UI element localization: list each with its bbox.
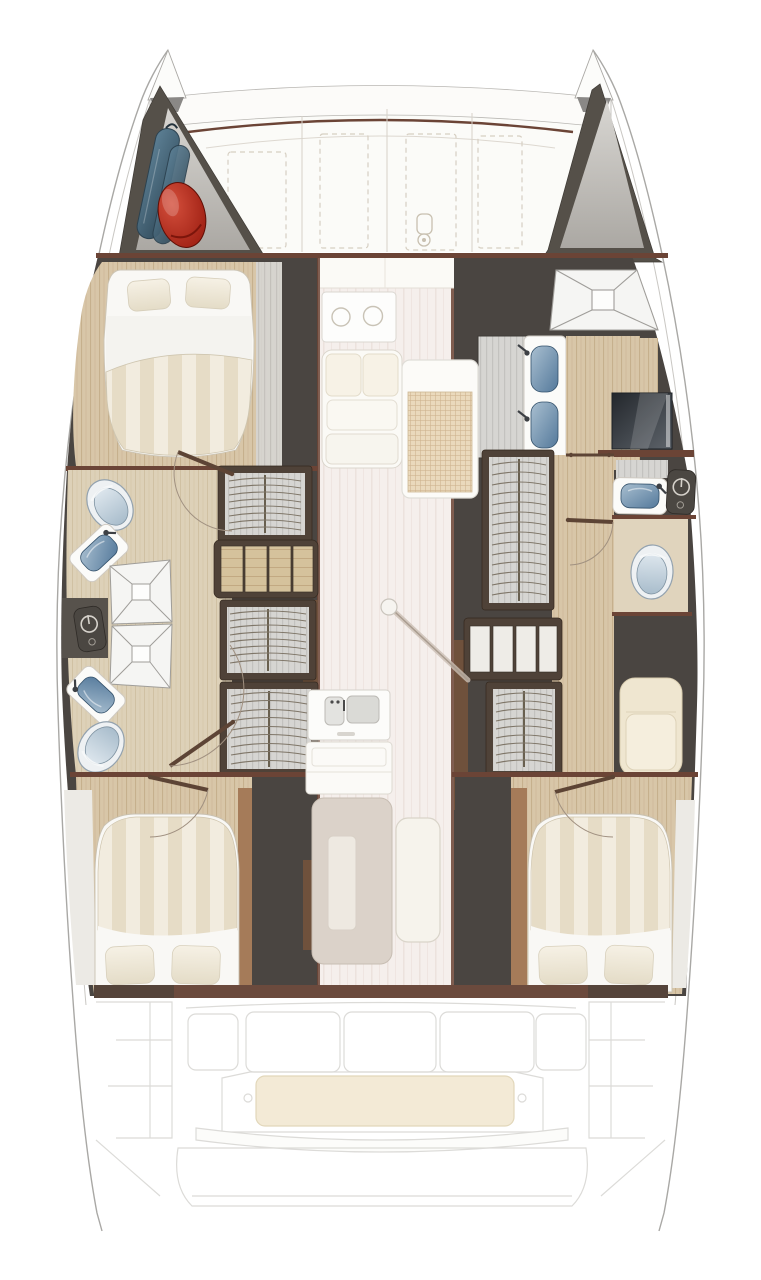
starboard-forward-wood-strip [640, 338, 658, 394]
port-aft-outboard-panel [64, 790, 96, 985]
port-forward-cabin-side-shelf [256, 262, 282, 466]
aft-bulkhead [94, 985, 668, 998]
starboard-louvre-cabinet [478, 336, 526, 458]
aft-bench-cushion [256, 1076, 514, 1126]
starboard-forward-shower [550, 270, 658, 330]
pillow-right [171, 945, 220, 985]
forward-bulkhead-trim [96, 253, 668, 258]
cup-holder-port [244, 1094, 252, 1102]
floor-plan-drawing [0, 0, 761, 1280]
aft-bulkhead-dark-starboard [588, 985, 668, 998]
starboard-mid-bulkhead [612, 612, 692, 616]
port-aft-bulkhead [70, 772, 318, 777]
bed-duvet [98, 817, 237, 939]
port-bow-tip [148, 50, 186, 100]
seat-bench-starboard [620, 678, 682, 776]
aft-bulkhead-dark-port [94, 985, 174, 998]
pillow-right [604, 945, 654, 985]
cockpit-locker-2 [344, 1012, 436, 1072]
cockpit-locker-3 [440, 1012, 534, 1072]
saloon-forward-seat-back [320, 258, 454, 288]
vanity-basin-2 [531, 402, 558, 448]
wardrobe-port-2 [220, 600, 316, 680]
swim-platform [177, 1148, 588, 1206]
cup-holder-starboard [518, 1094, 526, 1102]
cockpit-edge-line [186, 1003, 576, 1009]
cockpit-locker-wing-starboard [536, 1014, 586, 1070]
wardrobe-port-3 [220, 682, 318, 776]
tv-screen [612, 393, 672, 449]
equipment-unit-starboard [666, 469, 696, 514]
wardrobe-starboard-tall [482, 450, 554, 610]
companionway-steps-port [214, 540, 318, 598]
washbasin-starboard [613, 478, 668, 515]
transom-steps-port [96, 1002, 172, 1196]
cockpit [96, 1002, 665, 1206]
pillow-left [538, 945, 587, 985]
saloon-table [312, 798, 392, 964]
bow-section [118, 50, 662, 262]
tiled-mat [402, 360, 478, 498]
cockpit-locker-1 [246, 1012, 340, 1072]
wardrobe-port-1 [218, 466, 312, 542]
port-aft-cabin-wall-wood [238, 788, 252, 994]
sink-bowl-right [347, 696, 379, 723]
stove-counter [322, 292, 396, 342]
shower-pan-port-2 [110, 624, 172, 688]
port-forward-bed [104, 270, 254, 457]
pillow-left [127, 278, 171, 312]
shelf-unit-starboard [464, 618, 562, 680]
port-aft-bed [95, 814, 239, 992]
starboard-towel-band [616, 460, 668, 478]
pillow-left [105, 945, 155, 985]
catamaran-floor-plan [0, 0, 761, 1280]
cockpit-locker-wing-port [188, 1014, 238, 1070]
starboard-aft-cabin-wall [455, 777, 511, 994]
transom-steps-starboard [589, 1002, 665, 1196]
wardrobe-starboard-aft [486, 682, 562, 778]
starboard-double-vanity [518, 336, 566, 460]
bed-duvet [106, 354, 252, 455]
galley-counter [306, 742, 392, 794]
sink-bowl-left [325, 697, 344, 725]
saloon-sofa [322, 350, 402, 468]
galley-sink-unit [308, 690, 390, 740]
shower-pan-port-1 [110, 560, 172, 624]
starboard-aft-outboard-panel [672, 800, 695, 988]
saloon-bench [396, 818, 440, 942]
pillow-right [185, 277, 231, 310]
starboard-aft-bed [528, 814, 672, 992]
starboard-wc-bulkhead [612, 515, 696, 519]
starboard-aft-bulkhead [452, 772, 698, 777]
vanity-basin-1 [531, 346, 558, 392]
port-wardrobe-column [214, 466, 318, 776]
starboard-aft-cabin-wall-wood [511, 788, 527, 994]
